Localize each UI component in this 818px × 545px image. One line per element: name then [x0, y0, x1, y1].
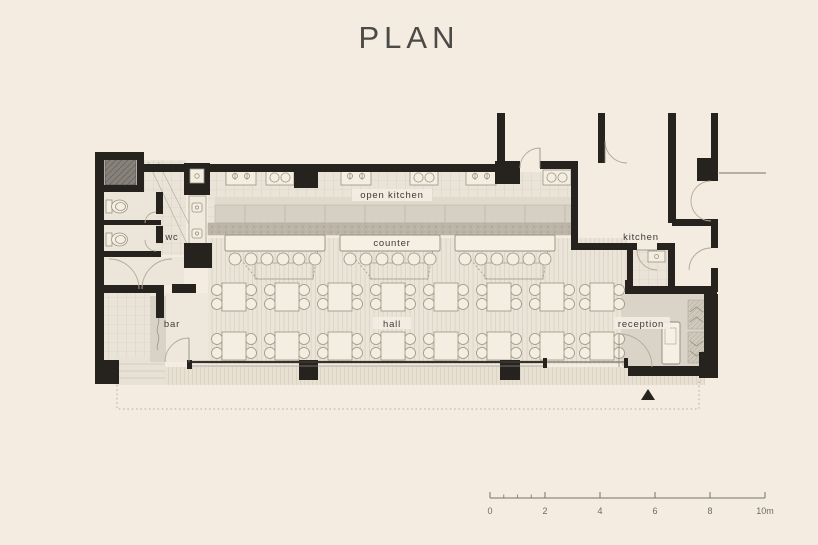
floor-plan-page: PLAN: [0, 0, 818, 545]
stair-strip: [688, 300, 705, 329]
room-label-reception: reception: [618, 319, 664, 330]
scale-tick-label: 6: [652, 506, 657, 516]
wc-sink-fixture: [190, 169, 204, 183]
stove-fixture: [543, 170, 571, 185]
bar-floor: [104, 293, 150, 362]
kitchen-room-fixtures: [648, 251, 665, 262]
room-label-kitchen: kitchen: [623, 232, 659, 243]
vestibule-floor: [104, 257, 184, 285]
kitchen-counter-front: [215, 205, 571, 223]
toilet-fixture: [106, 233, 128, 246]
scale-minor-ticks: [504, 495, 531, 499]
floor-plan-drawing: open kitchen counter wc bar hall kitchen…: [0, 0, 818, 545]
sink-fixture: [226, 170, 256, 185]
scale-tick-label: 2: [542, 506, 547, 516]
scale-tick-label: 0: [487, 506, 492, 516]
room-label-bar: bar: [164, 319, 180, 330]
scale-tick-label: 8: [707, 506, 712, 516]
scale-bar: 0 2 4 6 8 10m: [487, 492, 773, 516]
room-label-hall: hall: [383, 319, 401, 330]
sink-fixture: [341, 170, 371, 185]
counter-top-strip: [208, 223, 571, 235]
sink-fixture: [466, 170, 496, 185]
kitchen-sink-fixture: [648, 251, 665, 262]
entrance-triangle-marker: [641, 389, 655, 400]
toilet-fixture: [106, 200, 128, 213]
scale-tick-label: 10m: [756, 506, 774, 516]
stove-fixture: [266, 170, 294, 185]
stove-fixture: [410, 170, 438, 185]
terrace-strip: [117, 367, 705, 385]
urinal-fixture: [192, 203, 202, 212]
room-label-counter: counter: [373, 238, 410, 249]
shaft: [105, 159, 136, 185]
room-label-wc: wc: [164, 232, 178, 243]
room-label-open-kitchen: open kitchen: [360, 190, 423, 201]
scale-tick-label: 4: [597, 506, 602, 516]
urinal-fixture: [192, 229, 202, 238]
